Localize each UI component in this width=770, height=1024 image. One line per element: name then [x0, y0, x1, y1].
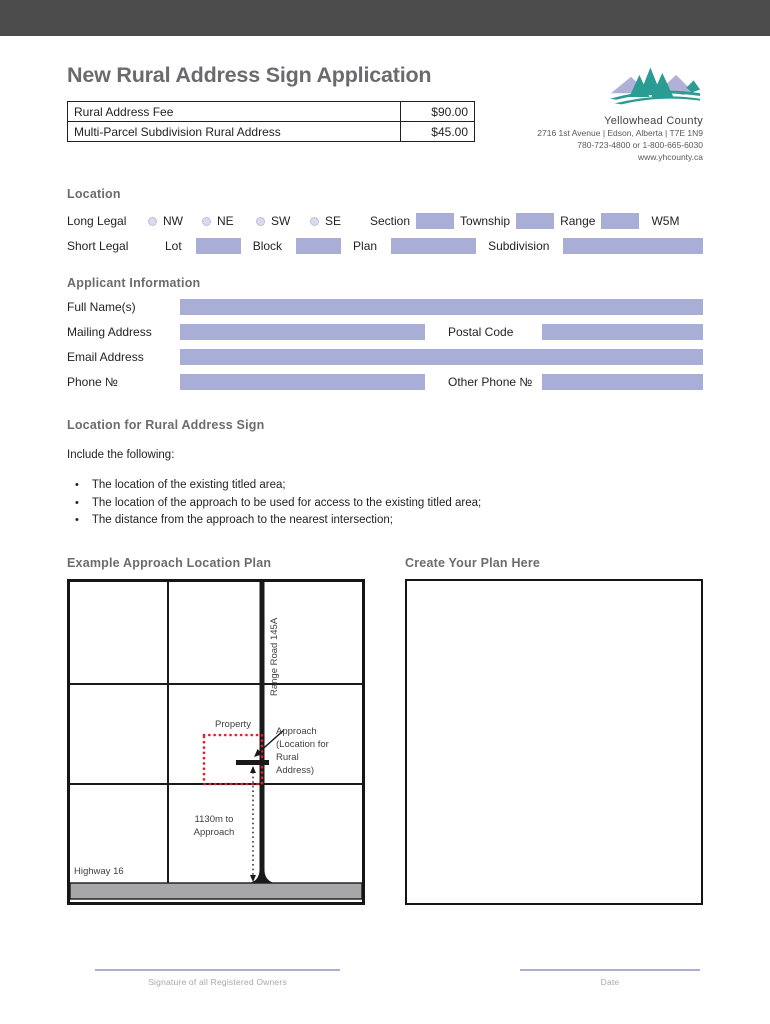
other-phone-label: Other Phone №: [425, 375, 542, 389]
range-label: Range: [560, 214, 595, 228]
fee-label: Multi-Parcel Subdivision Rural Address: [68, 122, 401, 142]
mailing-address-field[interactable]: [180, 324, 425, 340]
approach-marker: [236, 760, 269, 765]
township-label: Township: [460, 214, 510, 228]
requirements-list: The location of the existing titled area…: [67, 477, 703, 530]
mailing-address-label: Mailing Address: [67, 325, 180, 339]
long-legal-label: Long Legal: [67, 214, 148, 228]
top-bar: [0, 0, 770, 36]
page-title: New Rural Address Sign Application: [67, 62, 477, 88]
fee-amount: $90.00: [401, 102, 475, 122]
se-radio[interactable]: [310, 217, 319, 226]
full-name-label: Full Name(s): [67, 300, 180, 314]
block-field[interactable]: [296, 238, 341, 254]
list-item: The location of the existing titled area…: [67, 477, 703, 495]
postal-code-label: Postal Code: [425, 325, 542, 339]
lot-label: Lot: [165, 239, 182, 253]
signature-caption: Signature of all Registered Owners: [95, 977, 340, 987]
email-row: Email Address: [67, 349, 703, 365]
highway-band: [70, 883, 362, 899]
email-address-field[interactable]: [180, 349, 703, 365]
short-legal-label: Short Legal: [67, 239, 165, 253]
quarter-option-sw: SW: [256, 214, 310, 228]
nw-label: NW: [163, 214, 183, 228]
ne-radio[interactable]: [202, 217, 211, 226]
mailing-row: Mailing Address Postal Code: [67, 324, 703, 340]
range-field[interactable]: [601, 213, 639, 229]
sw-radio[interactable]: [256, 217, 265, 226]
list-item: The location of the approach to be used …: [67, 495, 703, 513]
subdivision-field[interactable]: [563, 238, 703, 254]
other-phone-field[interactable]: [542, 374, 703, 390]
signature-section: Signature of all Registered Owners Date: [67, 969, 703, 987]
quarter-option-ne: NE: [202, 214, 256, 228]
section-label: Section: [370, 214, 410, 228]
se-label: SE: [325, 214, 341, 228]
sw-label: SW: [271, 214, 290, 228]
fee-table: Rural Address Fee $90.00 Multi-Parcel Su…: [67, 101, 475, 142]
header: New Rural Address Sign Application Rural…: [67, 62, 703, 163]
range-road-label: Range Road 145A: [268, 586, 281, 696]
phone-row: Phone № Other Phone №: [67, 374, 703, 390]
example-approach-plan-diagram: Range Road 145A Property Approach (Locat…: [67, 579, 365, 905]
short-legal-row: Short Legal Lot Block Plan Subdivision: [67, 238, 703, 254]
postal-code-field[interactable]: [542, 324, 703, 340]
quarter-option-se: SE: [310, 214, 364, 228]
plan-field[interactable]: [391, 238, 476, 254]
yellowhead-county-logo-icon: [609, 62, 701, 113]
full-name-field[interactable]: [180, 299, 703, 315]
county-header-block: Yellowhead County 2716 1st Avenue | Edso…: [503, 62, 703, 163]
email-address-label: Email Address: [67, 350, 180, 364]
signature-field[interactable]: [95, 969, 340, 971]
sign-location-heading: Location for Rural Address Sign: [67, 418, 703, 432]
county-phone: 780-723-4800 or 1-800-665-6030: [503, 139, 703, 151]
create-plan-heading: Create Your Plan Here: [405, 556, 703, 570]
application-form-page: New Rural Address Sign Application Rural…: [0, 62, 770, 987]
subdivision-label: Subdivision: [488, 239, 549, 253]
township-field[interactable]: [516, 213, 554, 229]
phone-field[interactable]: [180, 374, 425, 390]
location-heading: Location: [67, 187, 703, 201]
include-intro: Include the following:: [67, 449, 703, 461]
table-row: Rural Address Fee $90.00: [68, 102, 475, 122]
meridian-label: W5M: [651, 214, 679, 228]
approach-label: Approach (Location for Rural Address): [276, 725, 336, 777]
county-website: www.yhcounty.ca: [503, 151, 703, 163]
long-legal-row: Long Legal NW NE SW SE Section Township …: [67, 213, 703, 229]
date-field[interactable]: [520, 969, 700, 971]
section-field[interactable]: [416, 213, 454, 229]
table-row: Multi-Parcel Subdivision Rural Address $…: [68, 122, 475, 142]
plans-section: Example Approach Location Plan: [67, 556, 703, 905]
block-label: Block: [253, 239, 282, 253]
ne-label: NE: [217, 214, 234, 228]
phone-label: Phone №: [67, 375, 180, 389]
property-label: Property: [190, 718, 276, 731]
fee-label: Rural Address Fee: [68, 102, 401, 122]
applicant-heading: Applicant Information: [67, 276, 703, 290]
full-name-row: Full Name(s): [67, 299, 703, 315]
date-caption: Date: [520, 977, 700, 987]
plan-label: Plan: [353, 239, 377, 253]
measure-arrow-top: [250, 766, 256, 773]
distance-label: 1130m to Approach: [182, 813, 246, 839]
fee-amount: $45.00: [401, 122, 475, 142]
nw-radio[interactable]: [148, 217, 157, 226]
highway-label: Highway 16: [74, 865, 124, 878]
quarter-option-nw: NW: [148, 214, 202, 228]
county-name: Yellowhead County: [503, 115, 703, 127]
example-plan-heading: Example Approach Location Plan: [67, 556, 365, 570]
create-plan-area[interactable]: [405, 579, 703, 905]
county-address: 2716 1st Avenue | Edson, Alberta | T7E 1…: [503, 127, 703, 139]
list-item: The distance from the approach to the ne…: [67, 512, 703, 530]
lot-field[interactable]: [196, 238, 241, 254]
